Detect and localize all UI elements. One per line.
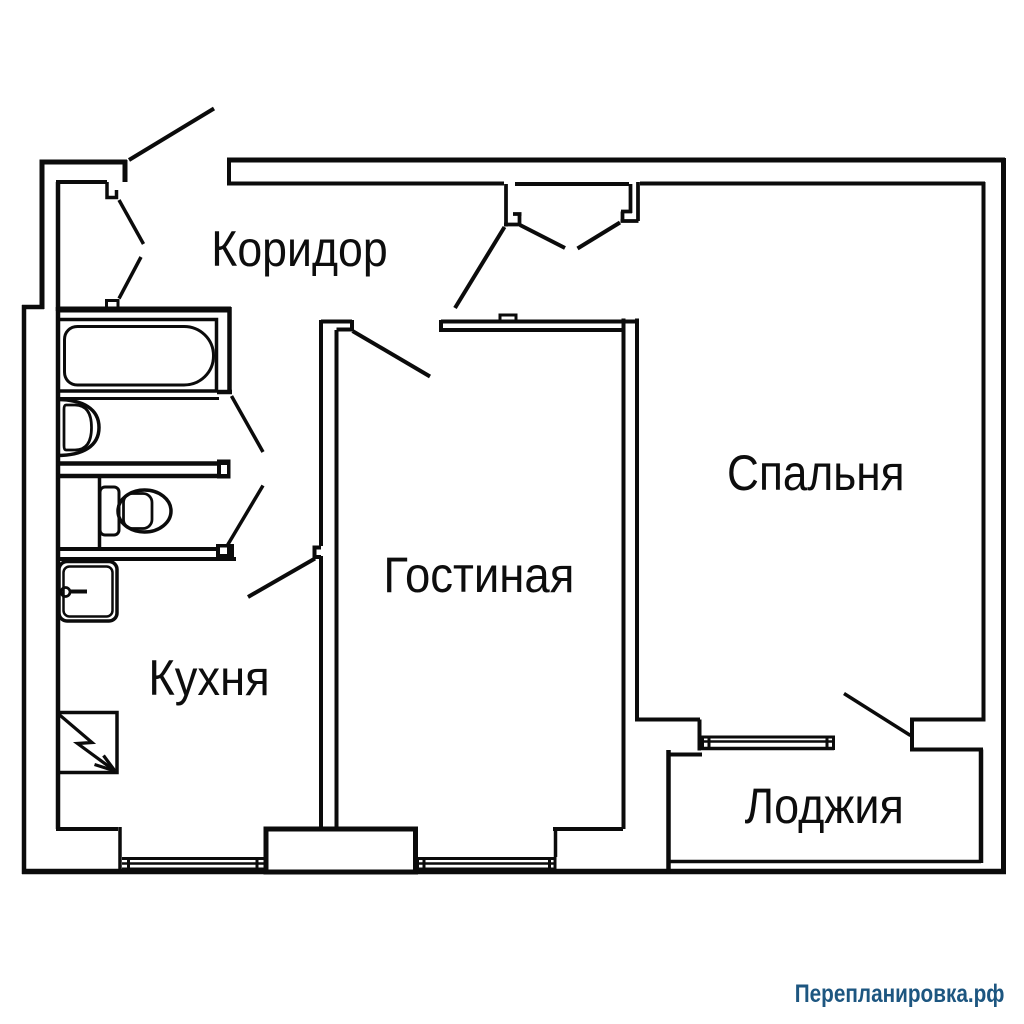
- svg-text:Коридор: Коридор: [211, 221, 387, 277]
- svg-text:Кухня: Кухня: [148, 650, 269, 706]
- svg-text:Гостиная: Гостиная: [383, 547, 574, 603]
- svg-text:Лоджия: Лоджия: [745, 778, 904, 834]
- svg-text:Спальня: Спальня: [727, 445, 905, 501]
- svg-text:Перепланировка.рф: Перепланировка.рф: [795, 980, 1005, 1008]
